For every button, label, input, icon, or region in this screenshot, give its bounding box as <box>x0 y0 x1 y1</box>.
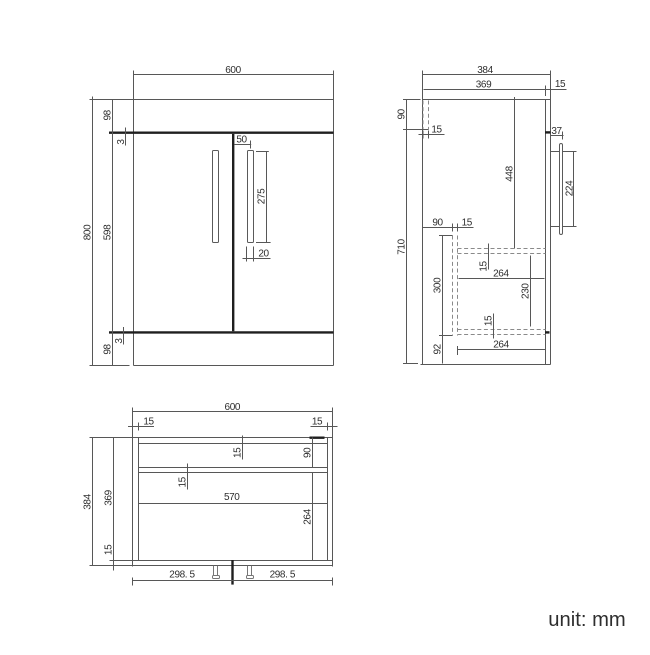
svg-text:15: 15 <box>143 417 154 428</box>
svg-text:570: 570 <box>224 492 240 503</box>
svg-text:384: 384 <box>477 65 493 76</box>
svg-text:710: 710 <box>396 238 407 254</box>
svg-text:224: 224 <box>564 180 575 196</box>
svg-text:15: 15 <box>232 447 243 458</box>
svg-text:3: 3 <box>114 338 125 344</box>
svg-text:15: 15 <box>103 544 114 555</box>
svg-text:15: 15 <box>483 315 494 326</box>
svg-text:15: 15 <box>177 476 188 487</box>
svg-text:15: 15 <box>555 79 566 90</box>
svg-text:264: 264 <box>493 269 509 280</box>
svg-text:384: 384 <box>82 493 93 509</box>
svg-text:98: 98 <box>102 344 113 355</box>
svg-text:298. 5: 298. 5 <box>270 569 296 580</box>
svg-text:275: 275 <box>256 188 267 204</box>
svg-text:92: 92 <box>432 343 443 354</box>
svg-text:98: 98 <box>102 109 113 120</box>
svg-text:90: 90 <box>302 447 313 458</box>
svg-text:15: 15 <box>312 417 323 428</box>
svg-text:230: 230 <box>520 283 531 299</box>
svg-text:598: 598 <box>102 224 113 240</box>
svg-text:369: 369 <box>476 80 492 91</box>
svg-text:15: 15 <box>478 261 489 272</box>
svg-text:3: 3 <box>116 139 127 145</box>
svg-text:90: 90 <box>432 218 443 229</box>
svg-text:448: 448 <box>505 165 516 181</box>
svg-text:20: 20 <box>258 248 269 259</box>
svg-text:264: 264 <box>302 508 313 524</box>
svg-text:300: 300 <box>432 277 443 293</box>
svg-text:264: 264 <box>493 340 509 351</box>
svg-text:unit: mm: unit: mm <box>548 609 625 631</box>
svg-text:800: 800 <box>83 224 94 240</box>
svg-text:15: 15 <box>431 124 442 135</box>
svg-text:600: 600 <box>225 402 241 413</box>
svg-text:50: 50 <box>236 135 247 146</box>
svg-text:298. 5: 298. 5 <box>169 569 195 580</box>
svg-text:37: 37 <box>551 126 562 137</box>
svg-text:600: 600 <box>225 65 241 76</box>
svg-text:369: 369 <box>103 489 114 505</box>
svg-text:90: 90 <box>396 108 407 119</box>
svg-text:15: 15 <box>462 218 473 229</box>
